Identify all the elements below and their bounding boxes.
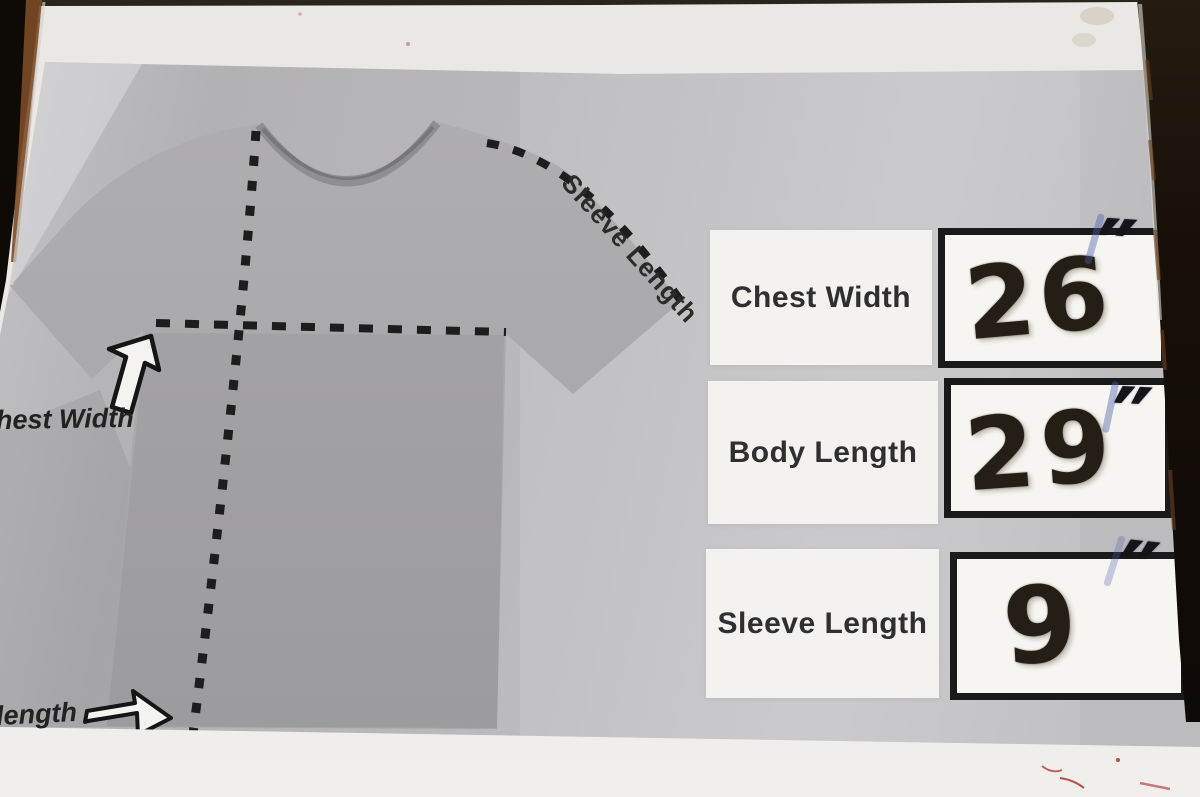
tshirt-body-shade <box>107 333 504 728</box>
red-speck <box>1116 758 1120 762</box>
size-label-box-chest-width: Chest Width <box>710 230 932 365</box>
size-label: Chest Width <box>731 281 911 315</box>
size-label: Sleeve Length <box>718 607 928 641</box>
size-label-box-body-length: Body Length <box>708 381 938 524</box>
size-value-box-body-length: 29 ″ <box>944 378 1172 518</box>
framed-size-chart-photo: Sleeve Length hest Width length Chest Wi… <box>0 0 1200 797</box>
red-speck <box>406 42 410 46</box>
body-length-diagram-label: length <box>0 697 78 732</box>
handwritten-value: 29 <box>962 396 1120 506</box>
size-value-box-chest-width: 26 ″ <box>938 228 1168 368</box>
size-value-box-sleeve-length: 9 ″ <box>950 552 1188 700</box>
size-label-box-sleeve-length: Sleeve Length <box>706 549 939 698</box>
chest-width-diagram-label: hest Width <box>0 403 134 436</box>
red-speck <box>298 12 301 15</box>
handwritten-value: 9 <box>1000 571 1079 681</box>
size-label: Body Length <box>729 436 918 470</box>
